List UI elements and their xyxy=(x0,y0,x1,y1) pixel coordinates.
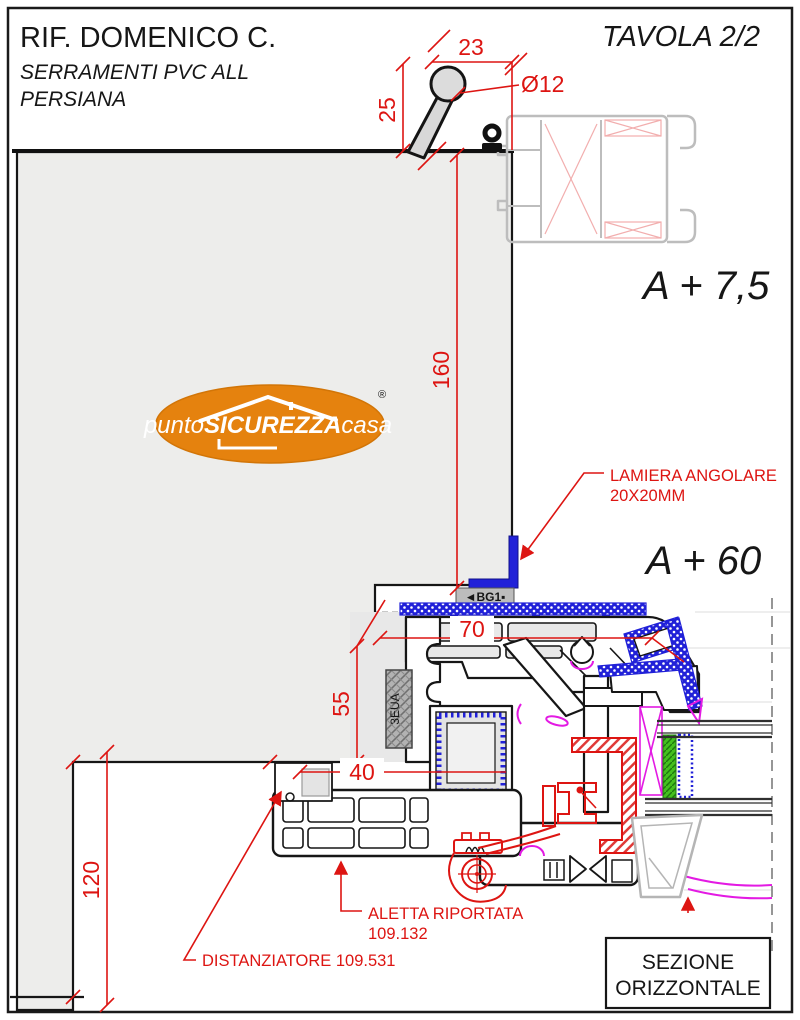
drawing-sheet: RIF. DOMENICO C. SERRAMENTI PVC ALL PERS… xyxy=(0,0,800,1020)
aletta-label-line2: 109.132 xyxy=(368,925,428,943)
section-title-box: SEZIONE ORIZZONTALE xyxy=(606,938,770,1008)
dim-70: 70 xyxy=(459,616,485,642)
aletta-label-line1: ALETTA RIPORTATA xyxy=(368,905,523,923)
dim-diameter: Ø12 xyxy=(521,71,564,97)
window-handle xyxy=(408,67,502,158)
lamiera-label-line1: LAMIERA ANGOLARE xyxy=(610,467,777,485)
dim-40: 40 xyxy=(349,759,375,785)
handle-knob xyxy=(431,67,465,101)
handle-lever xyxy=(408,96,452,158)
section-title-line2: ORIZZONTALE xyxy=(615,977,760,1000)
glazing-spacer-green xyxy=(663,735,676,798)
section-title-line1: SEZIONE xyxy=(642,951,734,974)
alu-shutter-profile-bottom xyxy=(632,815,702,897)
dim-120: 120 xyxy=(78,861,104,899)
glazing-spacer-blue xyxy=(679,735,692,797)
seal-gasket xyxy=(485,126,499,140)
distanziatore-label: DISTANZIATORE 109.531 xyxy=(202,952,396,970)
level-a-60: A + 60 xyxy=(644,539,761,583)
sheet-number: TAVOLA 2/2 xyxy=(602,21,760,53)
page-title: RIF. DOMENICO C. xyxy=(20,22,276,54)
alu-shutter-profile-top xyxy=(498,116,695,242)
logo-text: puntoSICUREZZAcasa xyxy=(143,412,392,439)
foam-code-label: 3EUA xyxy=(388,693,402,724)
subtitle-line2: PERSIANA xyxy=(20,88,126,111)
dim-55: 55 xyxy=(328,691,354,717)
lamiera-label-line2: 20X20MM xyxy=(610,487,685,505)
subtitle-line1: SERRAMENTI PVC ALL xyxy=(20,61,249,84)
insulation-strip-top xyxy=(400,603,646,615)
registered-mark: ® xyxy=(378,389,386,401)
profile-badge: ◄BG1▪ xyxy=(456,588,514,604)
technical-drawing: RIF. DOMENICO C. SERRAMENTI PVC ALL PERS… xyxy=(0,0,800,1020)
dim-160: 160 xyxy=(428,351,454,389)
profile-cross-marks xyxy=(545,120,661,238)
dim-23: 23 xyxy=(458,34,484,60)
glazing-unit xyxy=(645,721,772,815)
dim-25: 25 xyxy=(374,97,400,123)
level-a-7-5: A + 7,5 xyxy=(641,264,770,308)
badge-label: ◄BG1▪ xyxy=(465,590,506,604)
